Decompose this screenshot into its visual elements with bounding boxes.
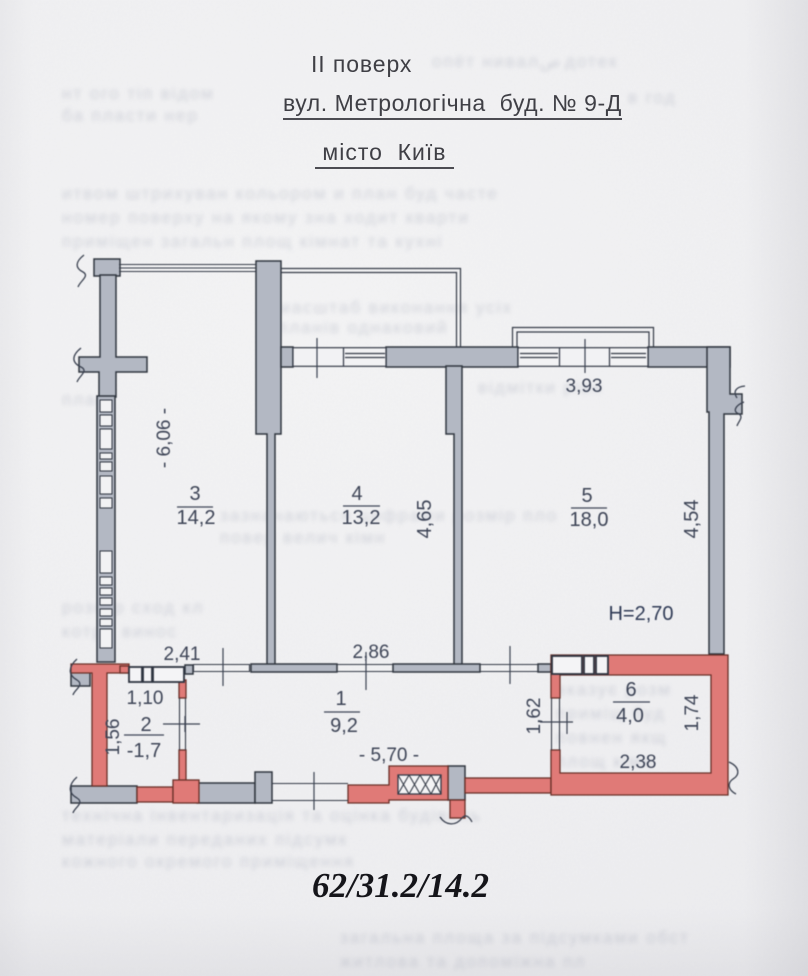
svg-text:4: 4 xyxy=(351,483,362,505)
svg-text:18,0: 18,0 xyxy=(570,509,609,531)
svg-text:6: 6 xyxy=(625,679,636,701)
svg-text:-1,7: -1,7 xyxy=(127,740,161,762)
svg-text:- 6,06 -: - 6,06 - xyxy=(154,408,175,468)
svg-text:H=2,70: H=2,70 xyxy=(608,603,673,625)
svg-text:1,62: 1,62 xyxy=(524,698,545,735)
svg-text:- 5,70 -: - 5,70 - xyxy=(359,745,419,766)
svg-text:2,86: 2,86 xyxy=(353,642,390,663)
svg-text:5: 5 xyxy=(581,485,592,507)
svg-text:2,38: 2,38 xyxy=(620,752,657,773)
svg-text:1,74: 1,74 xyxy=(682,694,703,731)
svg-text:2: 2 xyxy=(140,714,151,736)
svg-text:2,41: 2,41 xyxy=(164,644,201,665)
svg-text:3: 3 xyxy=(189,483,200,505)
svg-text:1: 1 xyxy=(335,688,346,710)
svg-text:4,0: 4,0 xyxy=(616,705,644,727)
svg-text:1,56: 1,56 xyxy=(103,719,124,756)
svg-text:1,10: 1,10 xyxy=(127,688,164,709)
svg-text:4,54: 4,54 xyxy=(681,500,703,539)
svg-text:9,2: 9,2 xyxy=(330,715,358,737)
svg-text:14,2: 14,2 xyxy=(177,507,216,529)
svg-text:13,2: 13,2 xyxy=(342,507,381,529)
svg-text:4,65: 4,65 xyxy=(414,500,436,539)
svg-text:3,93: 3,93 xyxy=(566,376,603,397)
